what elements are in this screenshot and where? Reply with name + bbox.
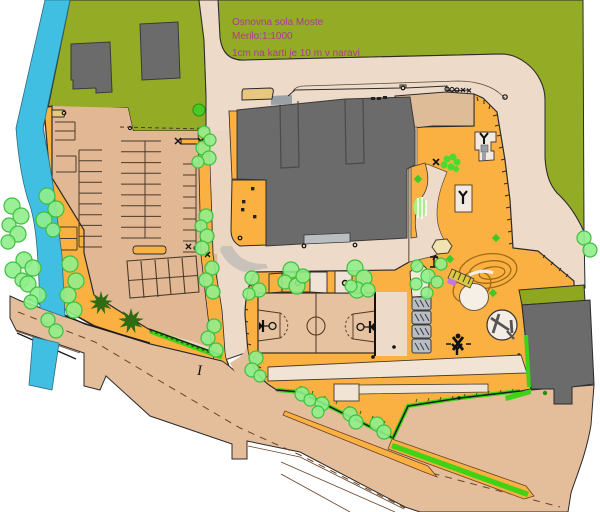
- svg-text:Osnovna sola Moste: Osnovna sola Moste: [232, 17, 324, 28]
- svg-text:1cm na karti je 10 m v naravi: 1cm na karti je 10 m v naravi: [232, 48, 360, 59]
- svg-text:Merilo:1:1000: Merilo:1:1000: [232, 31, 293, 42]
- svg-text:I: I: [196, 363, 203, 379]
